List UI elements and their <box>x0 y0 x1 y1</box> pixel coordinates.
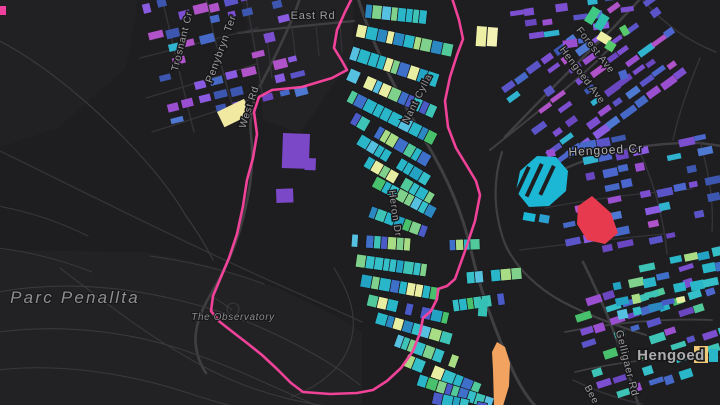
building <box>420 263 428 277</box>
building <box>523 8 534 17</box>
pale-yellow-pair-a <box>476 26 487 47</box>
label-the-observatory: The Observatory <box>191 312 275 323</box>
building <box>470 239 480 250</box>
building <box>396 237 404 250</box>
dark-map[interactable]: East RdTrosnant CrPenybryn TerWest RdNan… <box>0 0 720 405</box>
building <box>500 268 512 281</box>
building <box>351 234 358 247</box>
pale-yellow-pair-b <box>487 27 498 47</box>
building <box>511 267 523 280</box>
building <box>449 239 456 250</box>
building <box>441 42 454 57</box>
label-east-rd: East Rd <box>291 10 336 22</box>
building <box>418 10 427 25</box>
building <box>365 235 374 249</box>
building <box>403 238 410 251</box>
teal-building-left-edge <box>478 299 488 317</box>
map-canvas[interactable]: East RdTrosnant CrPenybryn TerWest RdNan… <box>0 0 720 405</box>
building <box>455 239 463 250</box>
building <box>386 298 399 312</box>
building <box>373 236 381 249</box>
label-parc-penallta: Parc Penallta <box>10 288 140 307</box>
teal-building-hengoed <box>709 349 718 362</box>
building <box>371 5 382 20</box>
building <box>387 237 397 251</box>
pink-fragment-top-left <box>0 6 6 15</box>
building <box>474 271 484 284</box>
purple-building-annex <box>305 158 316 170</box>
cyan-building-b <box>539 214 550 224</box>
building <box>490 269 501 282</box>
building <box>381 6 392 21</box>
building <box>632 306 641 315</box>
label-hengoed-place: Hengoed <box>637 347 705 364</box>
building <box>555 3 568 13</box>
building <box>466 271 475 284</box>
building <box>497 293 506 306</box>
building <box>380 236 388 249</box>
purple-building-small <box>276 188 293 203</box>
